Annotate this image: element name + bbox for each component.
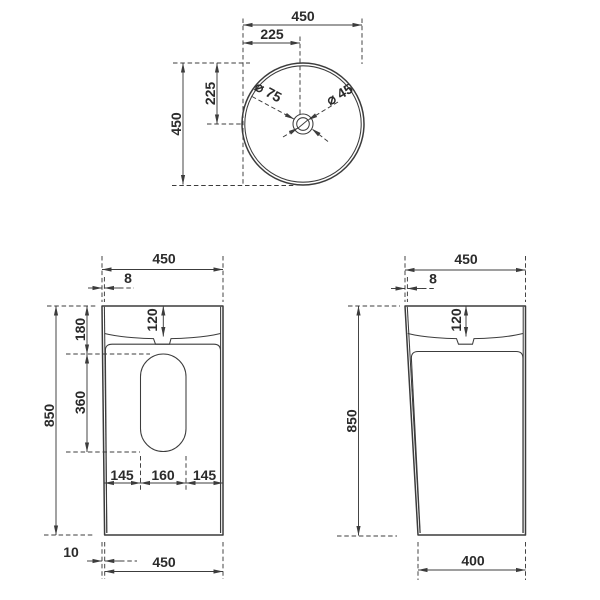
dim-label: 145 bbox=[110, 467, 134, 483]
dim-label: 450 bbox=[168, 112, 184, 136]
dim-label: 145 bbox=[193, 467, 217, 483]
dim-label: 120 bbox=[144, 308, 160, 332]
basin-rim-curve bbox=[105, 334, 221, 345]
leader-line bbox=[283, 128, 298, 137]
dim-label: 450 bbox=[291, 8, 315, 24]
dim-front-cutout-left: 145 bbox=[104, 467, 140, 483]
dim-label: 225 bbox=[260, 26, 284, 42]
dim-top-center-y: 225 bbox=[202, 63, 218, 124]
inner-face-outline bbox=[105, 344, 220, 533]
leader-line bbox=[312, 129, 328, 142]
dim-top-height: 450 bbox=[168, 63, 184, 185]
dim-label: 360 bbox=[72, 391, 88, 415]
drawing-canvas: 450 225 450 225 ⌀ 75 ⌀ 45 bbox=[0, 0, 600, 600]
dim-top-center-x: 225 bbox=[243, 26, 300, 43]
dim-drain-outer: ⌀ 75 bbox=[252, 78, 328, 142]
dim-label: 850 bbox=[41, 404, 57, 428]
dim-label: ⌀ 75 bbox=[252, 78, 284, 105]
dim-front-width-top: 450 bbox=[102, 251, 223, 270]
dim-front-base-inset: 10 bbox=[63, 544, 137, 561]
oval-cutout bbox=[141, 354, 187, 452]
dim-side-width-top: 450 bbox=[405, 251, 526, 270]
top-view: 450 225 450 225 ⌀ 75 ⌀ 45 bbox=[168, 8, 364, 186]
basin-rim-curve bbox=[408, 334, 523, 345]
dim-label: 400 bbox=[461, 553, 485, 569]
dim-side-wall: 8 bbox=[391, 271, 437, 289]
dim-label: 8 bbox=[124, 270, 132, 286]
front-view: 450 8 120 180 360 850 145 bbox=[41, 251, 223, 580]
extension-lines bbox=[337, 256, 526, 580]
dim-label: 450 bbox=[152, 554, 176, 570]
dim-label: 10 bbox=[63, 544, 79, 560]
dim-side-width-bottom: 400 bbox=[418, 553, 526, 571]
dim-label: 8 bbox=[429, 271, 437, 287]
dim-label: 450 bbox=[454, 251, 478, 267]
dim-label: 160 bbox=[151, 467, 175, 483]
dim-label: 180 bbox=[72, 318, 88, 342]
body-outline bbox=[102, 306, 223, 535]
side-view: 450 8 120 850 400 bbox=[337, 251, 526, 580]
dim-front-cutout-right: 145 bbox=[186, 467, 223, 483]
dim-front-height: 850 bbox=[41, 306, 57, 535]
dim-top-width: 450 bbox=[243, 8, 362, 25]
dim-label: ⌀ 45 bbox=[323, 80, 355, 108]
extension-lines bbox=[44, 256, 223, 579]
dim-side-height: 850 bbox=[344, 306, 360, 536]
dim-front-width-bottom: 450 bbox=[105, 554, 223, 572]
dim-label: 225 bbox=[202, 82, 218, 106]
body-outline bbox=[405, 306, 526, 535]
dim-side-basin-depth: 120 bbox=[448, 306, 466, 337]
dim-label: 120 bbox=[448, 308, 464, 332]
inner-face-outline bbox=[411, 352, 523, 534]
technical-drawing: 450 225 450 225 ⌀ 75 ⌀ 45 bbox=[0, 0, 600, 600]
dim-front-cutout-height: 360 bbox=[72, 354, 88, 452]
dim-front-basin-depth: 120 bbox=[144, 306, 163, 337]
dim-front-rim-to-cutout: 180 bbox=[72, 306, 88, 354]
dim-front-cutout-width: 160 bbox=[141, 467, 187, 483]
dim-front-wall: 8 bbox=[88, 270, 134, 288]
dim-label: 450 bbox=[152, 251, 176, 267]
dim-label: 850 bbox=[344, 409, 360, 433]
drain-mark bbox=[298, 120, 309, 129]
